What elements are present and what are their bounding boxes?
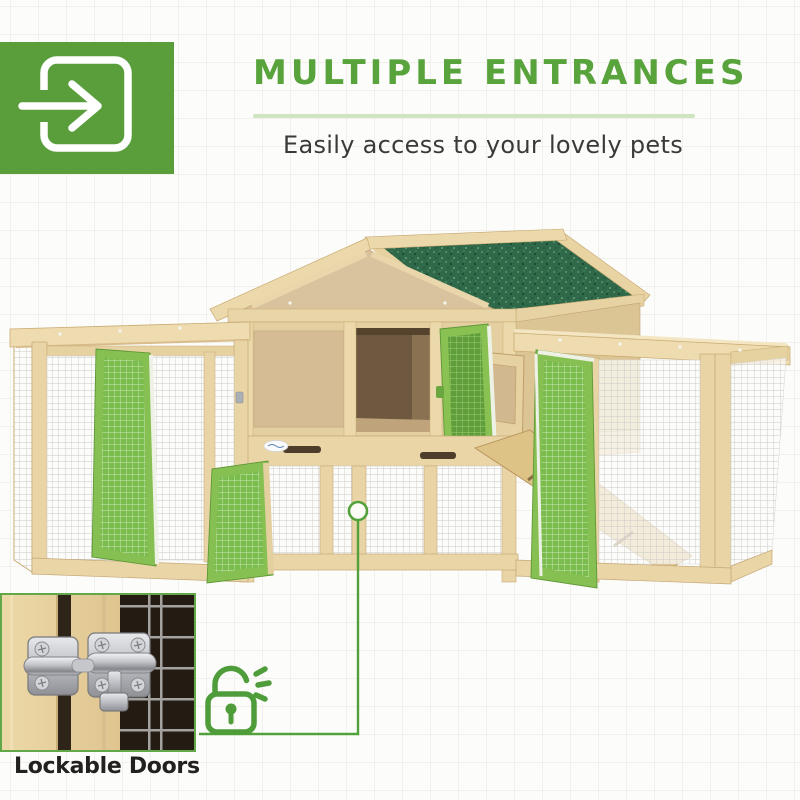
screw-dots: [58, 301, 741, 351]
brand-badge: [264, 441, 288, 452]
page: MULTIPLE ENTRANCES Easily access to your…: [0, 0, 800, 800]
circle-marker: [349, 502, 367, 520]
unlock-icon: [198, 652, 274, 740]
house-roof: [210, 229, 650, 321]
page-title: MULTIPLE ENTRANCES: [253, 56, 793, 90]
lower-green-door: [207, 461, 273, 583]
latch-photo: [2, 595, 194, 750]
left-run-green-door: [92, 349, 157, 566]
house-body: [228, 250, 644, 466]
nest-door: [480, 352, 524, 458]
right-run-green-door: [531, 350, 597, 588]
right-run: [475, 329, 790, 588]
house-green-door: [436, 324, 495, 452]
header: MULTIPLE ENTRANCES Easily access to your…: [253, 56, 793, 159]
inset-caption: Lockable Doors: [14, 754, 200, 779]
detail-inset: [0, 593, 196, 752]
left-run: [10, 322, 273, 583]
ramp: [475, 430, 692, 572]
page-subtitle: Easily access to your lovely pets: [283, 131, 793, 159]
entrance-icon-badge: [0, 42, 174, 174]
lower-run: [240, 466, 518, 582]
title-underline: [253, 114, 695, 118]
enter-arrow-icon: [0, 42, 174, 174]
